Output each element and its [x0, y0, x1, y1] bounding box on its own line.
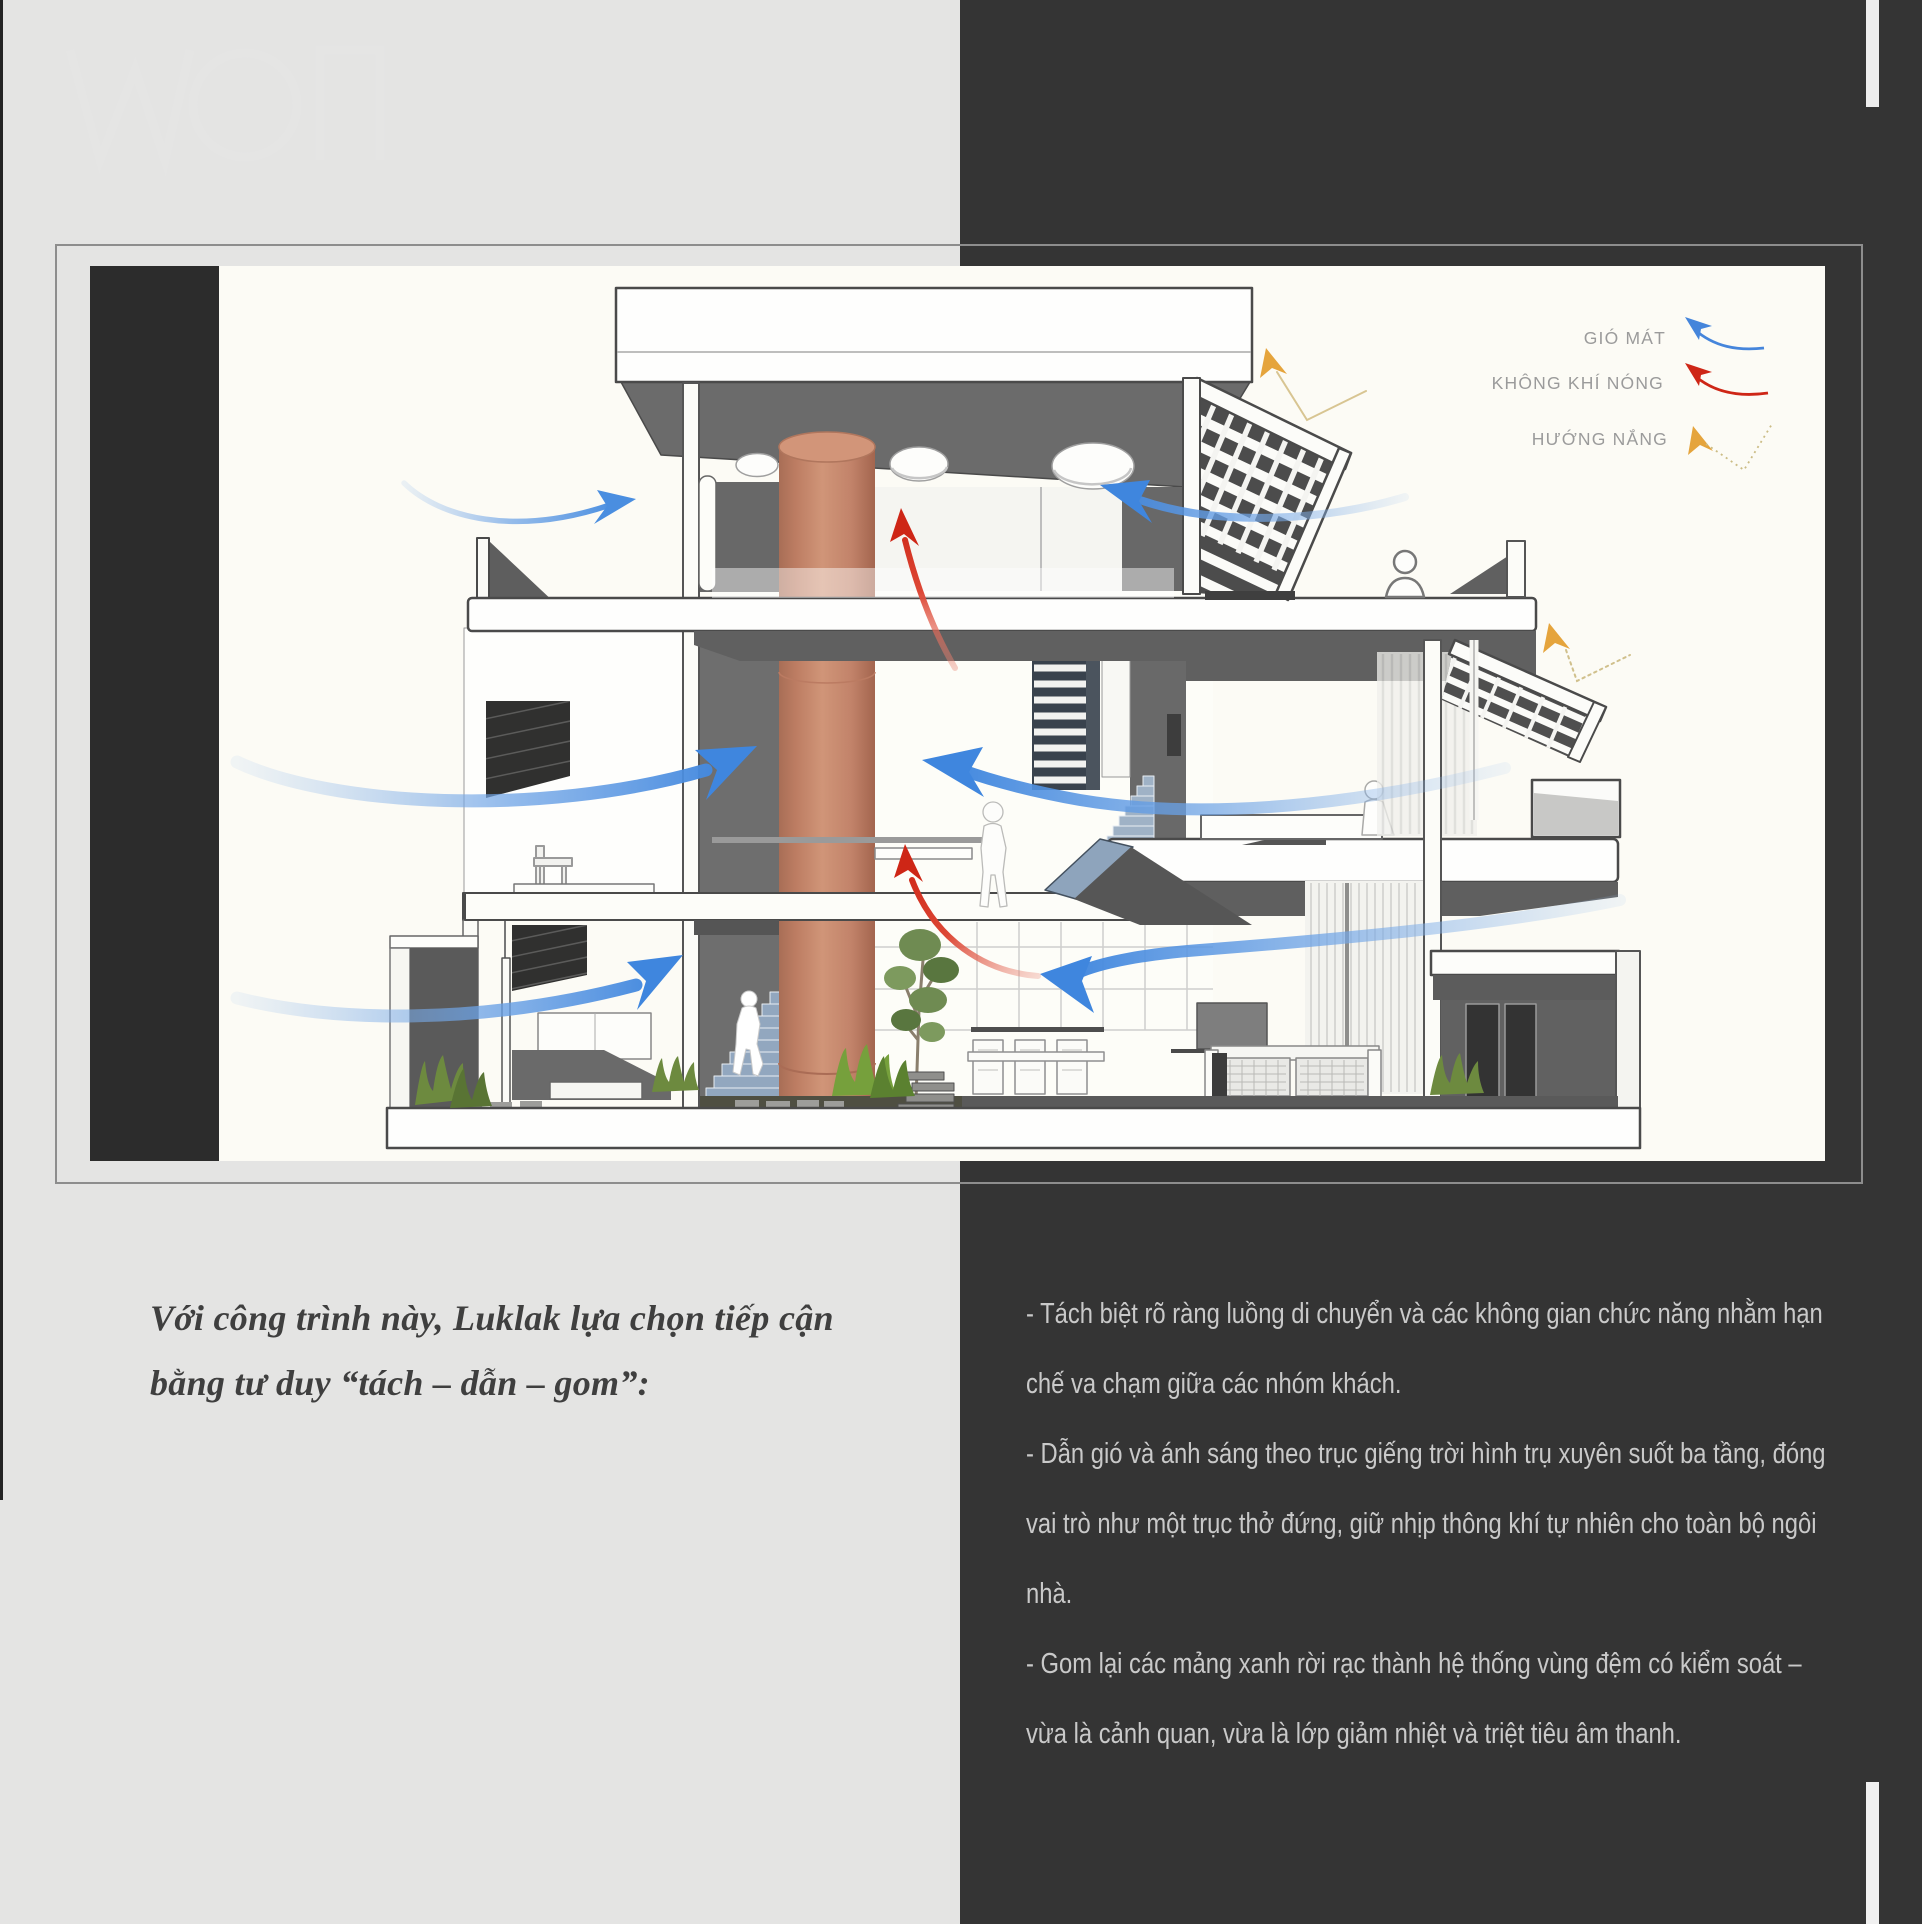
svg-text:HƯỚNG NẮNG: HƯỚNG NẮNG: [1532, 428, 1668, 449]
svg-text:KHÔNG KHÍ NÓNG: KHÔNG KHÍ NÓNG: [1492, 372, 1664, 393]
svg-text:GIÓ MÁT: GIÓ MÁT: [1584, 327, 1666, 348]
